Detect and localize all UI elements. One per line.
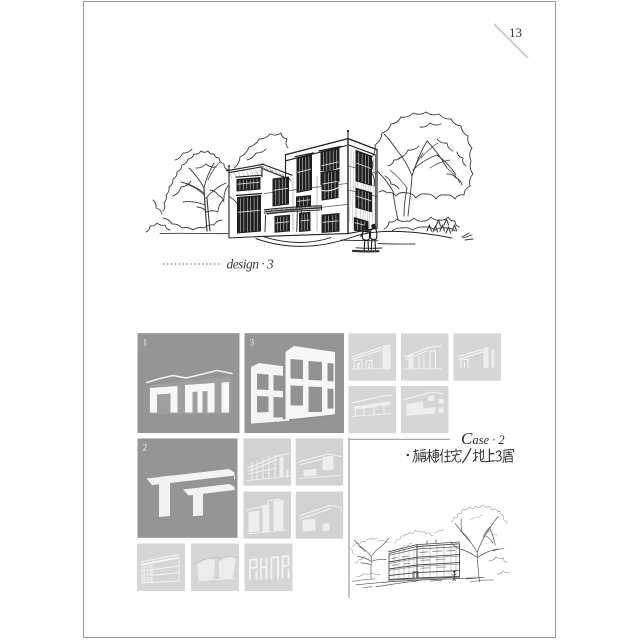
svg-text:2: 2 <box>143 444 148 454</box>
svg-text:13: 13 <box>509 25 522 40</box>
svg-text:1: 1 <box>143 339 148 349</box>
svg-text:design · 3: design · 3 <box>227 257 274 272</box>
svg-text:3: 3 <box>250 339 255 349</box>
